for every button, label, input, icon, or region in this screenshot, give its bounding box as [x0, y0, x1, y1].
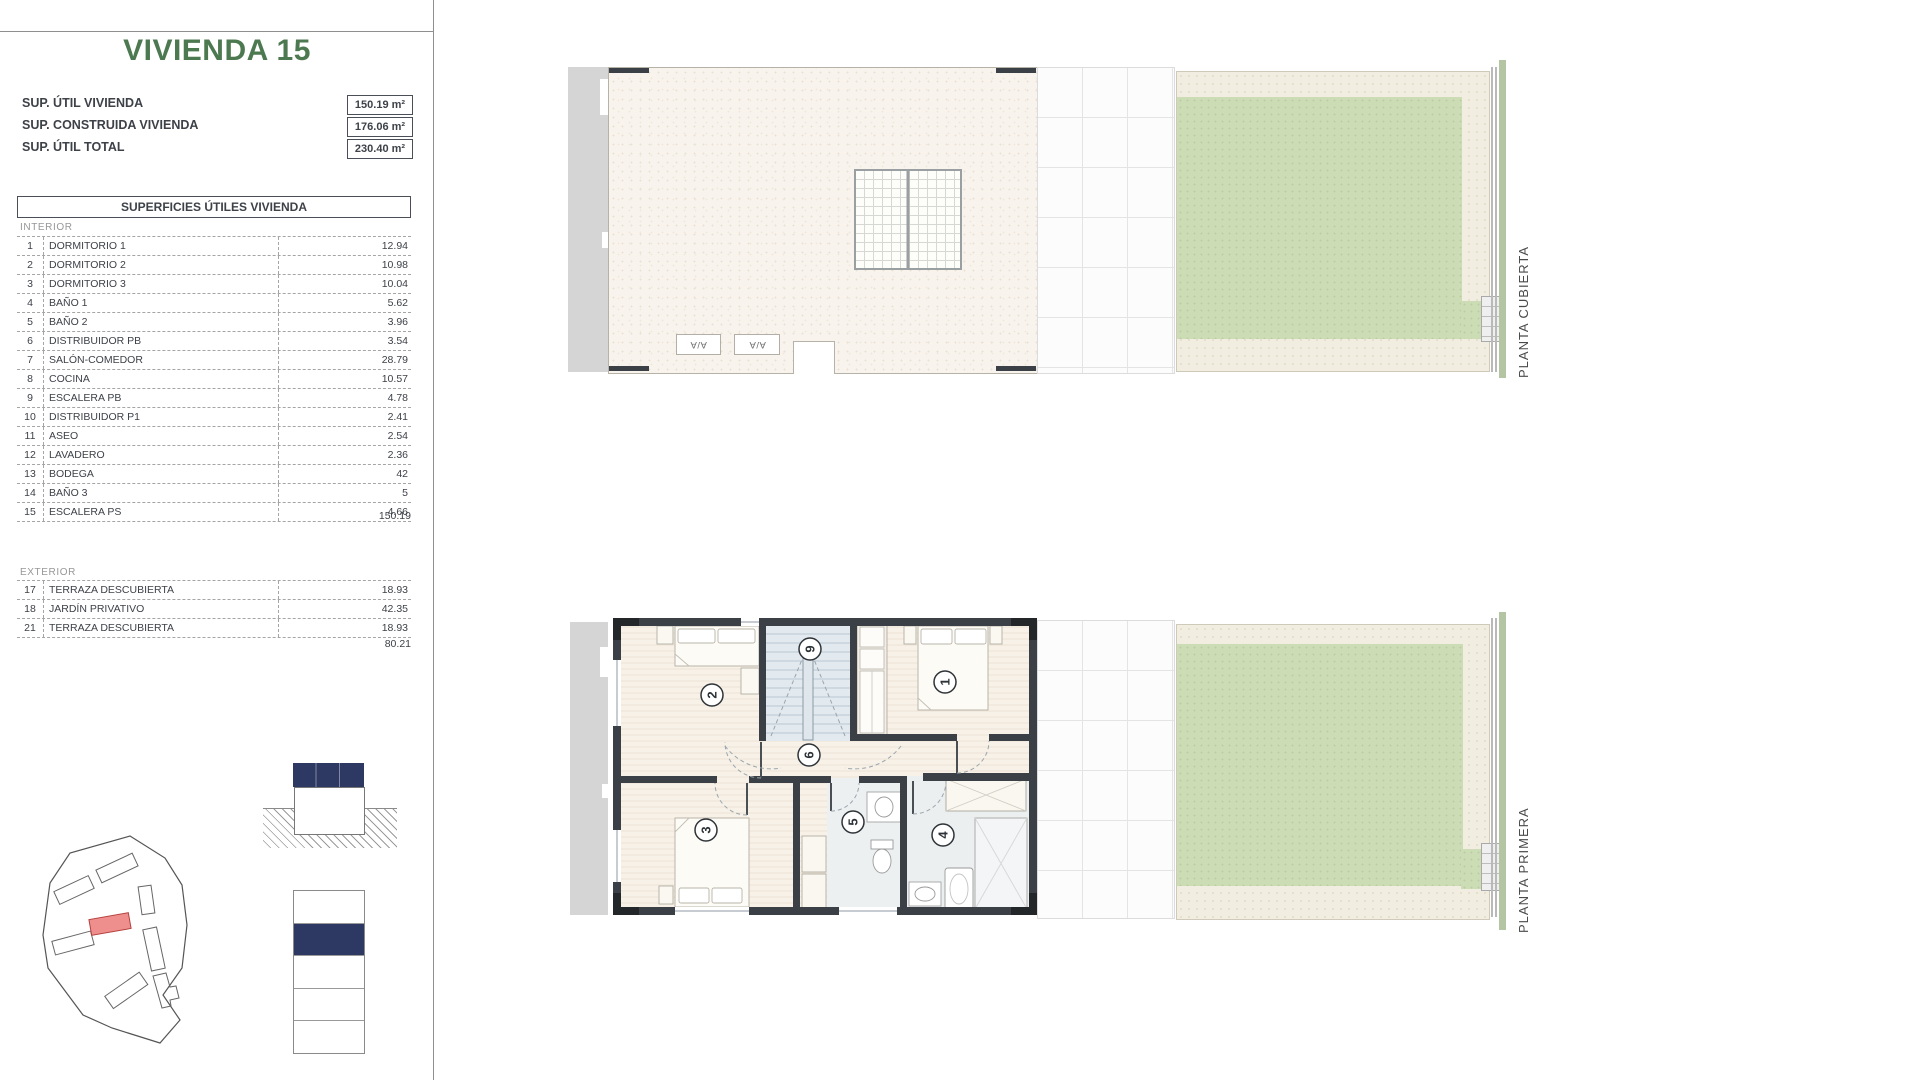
row-number: 2: [17, 256, 44, 274]
table-row: 3DORMITORIO 310.04: [17, 275, 411, 294]
row-value: 3.96: [279, 316, 411, 328]
wall-tick: [996, 68, 1036, 73]
row-number: 9: [17, 389, 44, 407]
row-name: COCINA: [44, 370, 279, 388]
table-row: 6DISTRIBUIDOR PB3.54: [17, 332, 411, 351]
row-name: DORMITORIO 1: [44, 237, 279, 255]
row-name: DISTRIBUIDOR P1: [44, 408, 279, 426]
table-row: 14BAÑO 35: [17, 484, 411, 503]
summary-value-box: 230.40 m²: [347, 139, 413, 159]
boundary-line: [1491, 67, 1493, 372]
table-row: 10DISTRIBUIDOR P12.41: [17, 408, 411, 427]
row-number: 17: [17, 581, 44, 599]
table-row: 12LAVADERO2.36: [17, 446, 411, 465]
row-value: 10.57: [279, 373, 411, 385]
row-value: 4.78: [279, 392, 411, 404]
section-roof-highlight: [293, 763, 364, 787]
level-stack: [293, 890, 365, 1054]
row-number: 3: [17, 275, 44, 293]
garden-block: [1176, 624, 1490, 920]
table-row: 18JARDÍN PRIVATIVO42.35: [17, 600, 411, 619]
interior-total: 150.19: [17, 510, 414, 522]
ac-unit-label: A/A: [690, 339, 707, 350]
hedge-strip: [1499, 612, 1506, 930]
row-name: ESCALERA PB: [44, 389, 279, 407]
room-number-1: 1: [938, 678, 953, 685]
plan-label-cubierta: PLANTA CUBIERTA: [1516, 232, 1538, 392]
table-row: 13BODEGA42: [17, 465, 411, 484]
level-row: [294, 956, 364, 989]
row-value: 10.98: [279, 259, 411, 271]
table-row: 17TERRAZA DESCUBIERTA18.93: [17, 581, 411, 600]
row-value: 5.62: [279, 297, 411, 309]
wall-tick: [609, 68, 649, 73]
row-number: 18: [17, 600, 44, 618]
table-row: 1DORMITORIO 112.94: [17, 237, 411, 256]
row-value: 2.54: [279, 430, 411, 442]
row-value: 18.93: [279, 584, 411, 596]
terrace-tiles: [1037, 620, 1175, 919]
site-plan: [35, 828, 195, 1060]
table-row: 21TERRAZA DESCUBIERTA18.93: [17, 619, 411, 638]
garden-lawn: [1177, 97, 1462, 339]
interior-table: 1DORMITORIO 112.94 2DORMITORIO 210.98 3D…: [17, 236, 411, 522]
table-row: 2DORMITORIO 210.98: [17, 256, 411, 275]
plan-label-primera: PLANTA PRIMERA: [1516, 790, 1538, 950]
row-name: DISTRIBUIDOR PB: [44, 332, 279, 350]
skylight-mullion: [907, 171, 910, 268]
room-number-3: 3: [699, 826, 714, 833]
wall-tick: [996, 366, 1036, 371]
row-value: 42: [279, 468, 411, 480]
highlighted-unit: [89, 913, 131, 936]
table-row: 4BAÑO 15.62: [17, 294, 411, 313]
level-row: [294, 989, 364, 1022]
row-number: 13: [17, 465, 44, 483]
summary-label: SUP. ÚTIL TOTAL: [22, 140, 125, 154]
page-title: VIVIENDA 15: [0, 34, 434, 68]
summary-value-box: 176.06 m²: [347, 117, 413, 137]
summary-value-box: 150.19 m²: [347, 95, 413, 115]
row-name: BODEGA: [44, 465, 279, 483]
section-body: [294, 787, 365, 835]
row-number: 5: [17, 313, 44, 331]
summary-label: SUP. CONSTRUIDA VIVIENDA: [22, 118, 198, 132]
boundary-line: [1495, 618, 1497, 917]
table-row: 11ASEO2.54: [17, 427, 411, 446]
row-number: 11: [17, 427, 44, 445]
room-number-9: 9: [803, 645, 818, 652]
boundary-line: [1491, 618, 1493, 917]
room-number-6: 6: [802, 751, 817, 758]
skylight: [854, 169, 962, 270]
table-row: 5BAÑO 23.96: [17, 313, 411, 332]
row-number: 10: [17, 408, 44, 426]
table-row: 7SALÓN-COMEDOR28.79: [17, 351, 411, 370]
areas-table-header: SUPERFICIES ÚTILES VIVIENDA: [17, 196, 411, 218]
row-name: SALÓN-COMEDOR: [44, 351, 279, 369]
row-name: BAÑO 2: [44, 313, 279, 331]
level-row: [294, 1021, 364, 1053]
row-name: JARDÍN PRIVATIVO: [44, 600, 279, 618]
row-number: 6: [17, 332, 44, 350]
bed-room1: [904, 626, 1002, 710]
table-row: 9ESCALERA PB4.78: [17, 389, 411, 408]
row-number: 12: [17, 446, 44, 464]
terrace-tiles: [1037, 67, 1175, 374]
row-value: 18.93: [279, 622, 411, 634]
row-name: DORMITORIO 2: [44, 256, 279, 274]
row-value: 2.41: [279, 411, 411, 423]
row-number: 21: [17, 619, 44, 637]
row-value: 10.04: [279, 278, 411, 290]
row-value: 42.35: [279, 603, 411, 615]
roof-plan-area: A/A A/A: [608, 67, 1039, 374]
level-row: [294, 891, 364, 924]
row-name: TERRAZA DESCUBIERTA: [44, 619, 279, 637]
top-rule: [0, 31, 434, 32]
room-number-4: 4: [936, 831, 951, 839]
interior-section-label: INTERIOR: [20, 222, 73, 233]
boundary-line: [1495, 67, 1497, 372]
wall-tick: [609, 366, 649, 371]
ac-unit-label: A/A: [749, 339, 766, 350]
row-value: 2.36: [279, 449, 411, 461]
row-number: 4: [17, 294, 44, 312]
garden-block: [1176, 71, 1490, 372]
plan-sheet: VIVIENDA 15 SUP. ÚTIL VIVIENDA 150.19 m²…: [0, 0, 1920, 1080]
floor-side-strip: [570, 622, 608, 915]
level-row-highlighted: [294, 924, 364, 957]
exterior-table: 17TERRAZA DESCUBIERTA18.93 18JARDÍN PRIV…: [17, 580, 411, 638]
row-value: 3.54: [279, 335, 411, 347]
row-name: DORMITORIO 3: [44, 275, 279, 293]
row-name: TERRAZA DESCUBIERTA: [44, 581, 279, 599]
row-number: 7: [17, 351, 44, 369]
vertical-divider: [433, 0, 434, 1080]
row-number: 1: [17, 237, 44, 255]
row-name: LAVADERO: [44, 446, 279, 464]
room-number-2: 2: [705, 691, 720, 698]
row-value: 28.79: [279, 354, 411, 366]
row-value: 5: [279, 487, 411, 499]
first-floor-plan: 1 2 3 4 5 6 9: [613, 618, 1037, 915]
summary-label: SUP. ÚTIL VIVIENDA: [22, 96, 143, 110]
row-name: BAÑO 1: [44, 294, 279, 312]
row-name: ASEO: [44, 427, 279, 445]
row-number: 8: [17, 370, 44, 388]
roof-side-strip: [568, 67, 608, 372]
ac-unit: A/A: [734, 334, 780, 355]
roof-notch: [793, 341, 835, 374]
ac-unit: A/A: [676, 334, 721, 355]
exterior-section-label: EXTERIOR: [20, 567, 76, 578]
garden-lawn: [1177, 644, 1463, 886]
hedge-strip: [1499, 60, 1506, 378]
exterior-total: 80.21: [17, 638, 414, 650]
room-number-5: 5: [846, 818, 861, 825]
site-boundary: [43, 836, 187, 1043]
row-name: BAÑO 3: [44, 484, 279, 502]
row-value: 12.94: [279, 240, 411, 252]
table-row: 8COCINA10.57: [17, 370, 411, 389]
row-number: 14: [17, 484, 44, 502]
closet: [857, 624, 887, 736]
